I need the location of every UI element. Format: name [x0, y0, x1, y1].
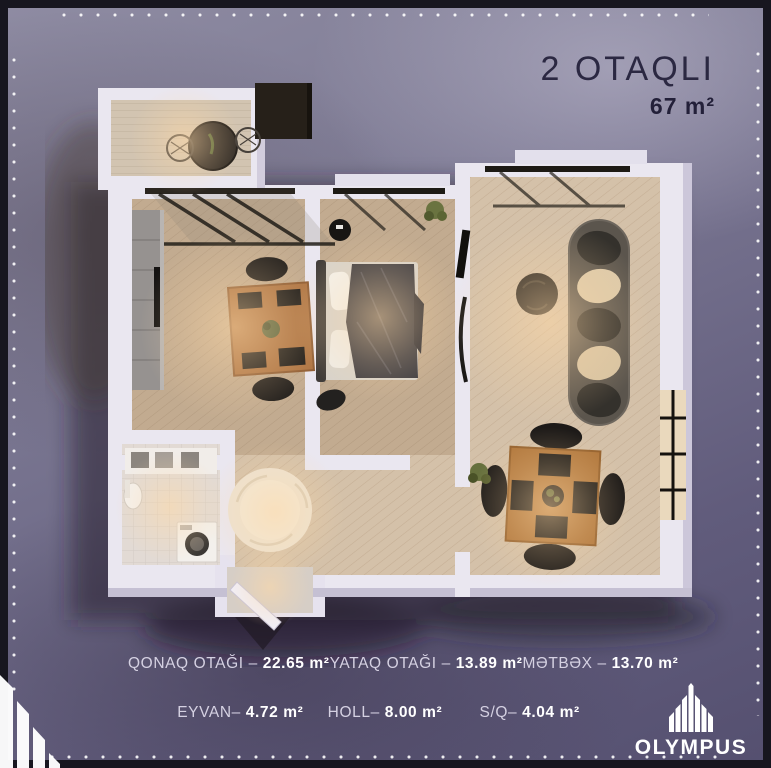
room-name: QONAQ OTAĞI	[128, 655, 244, 672]
room-area: 8.00 m²	[385, 704, 443, 721]
brand-name: OLYMPUS	[627, 736, 755, 760]
room-name: HOLL	[328, 704, 371, 721]
room-area: 22.65 m²	[263, 655, 330, 672]
legend-row-1: QONAQ OTAĞI – 22.65 m² YATAQ OTAĞI – 13.…	[128, 655, 650, 673]
plan-title: 2 OTAQLI	[540, 52, 715, 88]
room-area: 4.72 m²	[246, 704, 304, 721]
legend-item-kitchen: MƏTBƏX – 13.70 m²	[523, 655, 679, 673]
room-name: YATAQ OTAĞI	[330, 655, 437, 672]
separator: –	[244, 655, 263, 672]
brand-olympus: OLYMPUS	[627, 680, 755, 760]
separator: –	[437, 655, 456, 672]
legend-item-hall: HOLL– 8.00 m²	[313, 704, 458, 722]
room-area: 4.04 m²	[522, 704, 580, 721]
room-area: 13.89 m²	[456, 655, 523, 672]
room-name: MƏTBƏX	[523, 655, 593, 672]
separator: –	[371, 704, 385, 721]
background-panel	[8, 8, 763, 760]
room-name: S/Q	[480, 704, 509, 721]
legend-item-bedroom: YATAQ OTAĞI – 13.89 m²	[330, 655, 523, 673]
separator: –	[232, 704, 246, 721]
legend-item-balcony: EYVAN– 4.72 m²	[168, 704, 313, 722]
plan-area: 67 m²	[540, 93, 715, 120]
room-name: EYVAN	[177, 704, 231, 721]
legend-item-living-room: QONAQ OTAĞI – 22.65 m²	[128, 655, 330, 673]
legend-item-bathroom: S/Q– 4.04 m²	[457, 704, 602, 722]
separator: –	[508, 704, 522, 721]
legend-row-2: EYVAN– 4.72 m² HOLL– 8.00 m² S/Q– 4.04 m…	[168, 704, 602, 722]
plan-header: 2 OTAQLI 67 m²	[540, 52, 715, 120]
olympus-building-icon	[668, 680, 714, 732]
room-area: 13.70 m²	[612, 655, 679, 672]
separator: –	[593, 655, 612, 672]
